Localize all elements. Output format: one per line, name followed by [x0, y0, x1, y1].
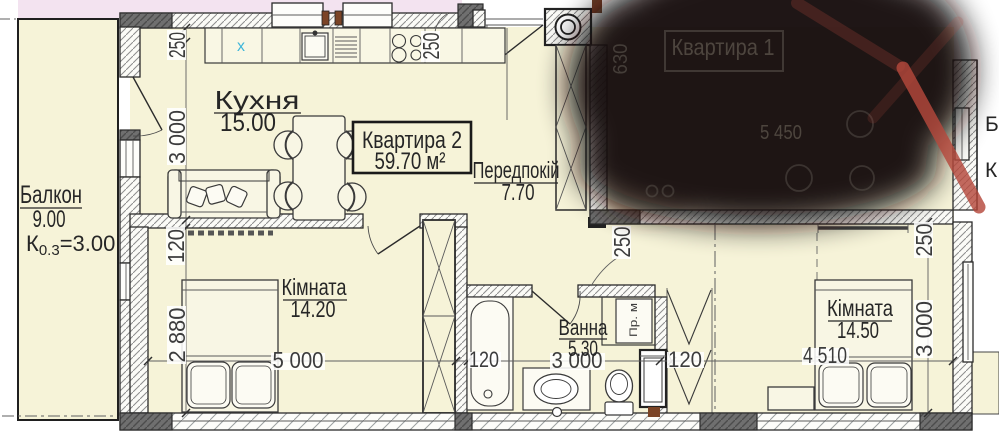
bedroom1-area-label: 14.20 — [291, 296, 336, 322]
water-heater-icon — [640, 350, 666, 417]
apartment2-area: 59.70 м² — [375, 148, 446, 175]
cabinet-mark-label: x — [237, 38, 245, 55]
dim-top-250: 250 — [418, 33, 444, 60]
washing-machine-label: Пр. м — [628, 303, 640, 337]
washbasin-icon — [523, 368, 590, 417]
dim-hall-250: 250 — [609, 227, 635, 258]
toilet-icon — [605, 370, 633, 415]
apartment1-dim-5450-faint: 5 450 — [760, 122, 802, 144]
dim-bath-120-left: 120 — [469, 347, 499, 372]
right-balcony-sliver — [972, 352, 999, 414]
balcony-area-label: 9.00 — [33, 206, 66, 233]
dim-left-2880: 2 880 — [164, 308, 190, 363]
kitchen-sink-icon — [302, 31, 328, 61]
dim-bedroom2-250: 250 — [911, 224, 937, 257]
kitchen-area-label: 15.00 — [220, 109, 276, 137]
apartment1-title-faint: Квартира 1 — [672, 34, 775, 60]
dim-bedroom2-4510: 4 510 — [803, 342, 847, 368]
balcony-name-label: Балкон — [20, 181, 82, 209]
coef-prefix: К — [26, 231, 39, 256]
sofa-icon — [168, 170, 280, 218]
dim-bath-120-right: 120 — [668, 347, 702, 372]
apartment2-title-box: Квартира 2 59.70 м² — [353, 122, 471, 175]
dim-bedroom1-5000: 5 000 — [273, 347, 324, 373]
bathroom-area-label: 5.30 — [568, 336, 598, 361]
dim-left-3000: 3 000 — [164, 110, 190, 164]
dim-bedroom2-3000: 3 000 — [911, 301, 937, 357]
dim-left-250: 250 — [164, 32, 190, 58]
coef-rest: =3.00 — [60, 231, 116, 256]
dim-left-120: 120 — [163, 229, 189, 263]
coef-sub: 0.3 — [39, 242, 60, 259]
wardrobe-column-icon — [423, 220, 455, 413]
right-coef-partial-label: К — [985, 159, 998, 182]
nightstand-icon — [768, 387, 814, 410]
right-balcony-partial-label: Б — [985, 113, 999, 136]
bottom-wall — [120, 413, 972, 430]
hallway-area-label: 7.70 — [502, 179, 535, 205]
floor-plan: x — [0, 0, 999, 433]
bedroom2-area-label: 14.50 — [837, 317, 879, 343]
apartment1-dim-630-faint: 630 — [610, 44, 632, 75]
floor-plan-image: x — [0, 0, 999, 433]
